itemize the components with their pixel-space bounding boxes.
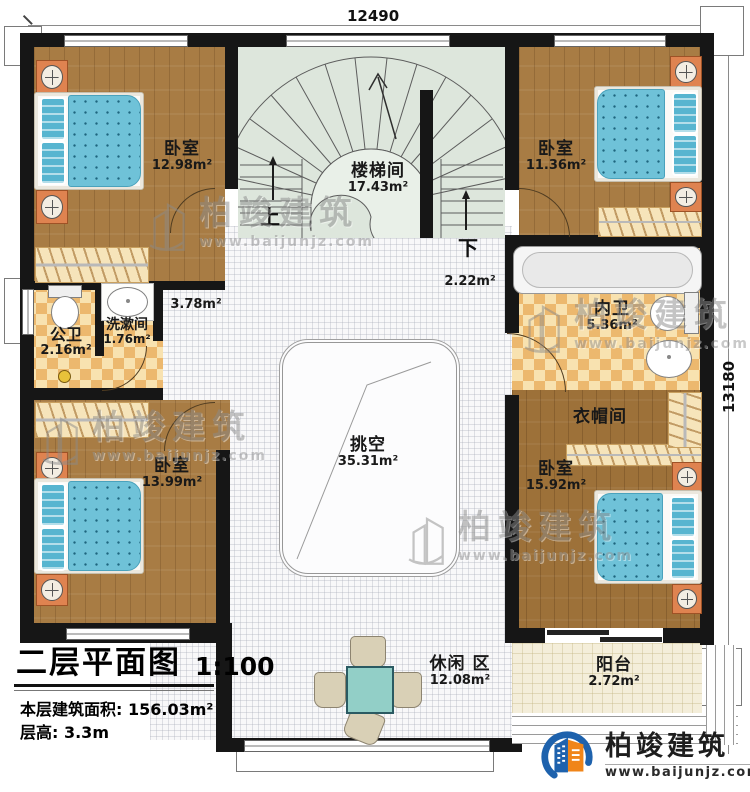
wall-bedroom1-stair [225, 47, 238, 189]
up-arrow-icon [272, 162, 274, 200]
room-label-bedroom-tr: 卧室 11.36m² [526, 140, 586, 173]
brand-logo-icon [538, 728, 596, 784]
wall-washroom-right [153, 281, 163, 341]
wall-bedroom3-right [216, 450, 230, 623]
stair-up-label: 上 [260, 201, 280, 230]
room-label-balcony: 阳台 2.72m² [588, 656, 639, 689]
bed-pillow [40, 527, 66, 571]
bed-mattress [68, 481, 141, 571]
dimension-width: 12490 [347, 7, 399, 25]
floor-plan: 12490 13180 [0, 0, 750, 792]
dimension-height: 13180 [720, 356, 738, 418]
leisure-table [346, 666, 394, 714]
room-label-bedroom-br: 卧室 15.92m² [526, 460, 586, 493]
brand-website: www.baijunjz.com [605, 764, 750, 780]
slider-door-leaf [600, 637, 662, 642]
floor-drain [58, 370, 71, 383]
inner-bath-sink [646, 340, 692, 378]
nightstand-lamp [670, 56, 702, 88]
window-bottom-left [66, 628, 190, 640]
chair [350, 636, 386, 668]
bed-mattress [597, 89, 665, 179]
room-label-leisure: 休闲 区 12.08m² [430, 655, 491, 688]
room-label-hall-right: 2.22m² [444, 275, 495, 289]
nightstand-lamp [672, 584, 702, 614]
nightstand-lamp [36, 574, 68, 606]
wall-cloak-left [505, 395, 519, 643]
title-rule [14, 684, 214, 687]
toilet-bowl [650, 296, 685, 331]
bed-pillow [40, 483, 66, 527]
room-label-cloakroom: 衣帽间 [573, 408, 627, 427]
room-label-inner-bath: 内卫 5.36m² [586, 300, 637, 333]
dimension-line-top [28, 25, 722, 26]
wall-leisure-left [216, 623, 232, 752]
stair-down-label: 下 [458, 232, 478, 261]
window-top-1 [64, 35, 188, 47]
chair [390, 672, 422, 708]
title-rule [14, 690, 214, 691]
down-arrow-icon [465, 196, 467, 230]
room-label-washroom: 洗漱间 1.76m² [103, 318, 150, 347]
window-bay-frame [236, 750, 494, 772]
wall-right [700, 33, 714, 645]
bathtub [513, 246, 702, 294]
floor-height-text: 层高: 3.3m [20, 719, 109, 743]
wall-bath-left-bottom [20, 388, 163, 400]
closet-bedroom1 [35, 247, 149, 283]
floor-area-text: 本层建筑面积: 156.03m² [20, 696, 213, 720]
bed-pillow [40, 97, 66, 141]
room-label-public-bath: 公卫 2.16m² [40, 326, 91, 358]
room-label-bedroom-tl: 卧室 12.98m² [152, 140, 212, 173]
closet-cloakroom-v [668, 392, 702, 448]
room-label-hall-left: 3.78m² [170, 298, 221, 312]
bed-pillow [670, 538, 696, 580]
wall-left [20, 33, 34, 643]
window-top-3 [554, 35, 666, 47]
closet-bedroom3 [35, 402, 149, 438]
bed-pillow [672, 134, 698, 176]
toilet-tank [684, 292, 699, 334]
window-left [22, 289, 34, 335]
wall-stair-corridor [420, 90, 433, 238]
bed-pillow [672, 92, 698, 134]
window-top-2 [286, 35, 450, 47]
brand-name: 柏竣建筑 [605, 732, 750, 762]
nightstand-lamp [672, 462, 702, 492]
room-label-void: 挑空 35.31m² [338, 436, 398, 469]
bed-pillow [40, 141, 66, 185]
room-label-stairwell: 楼梯间 17.43m² [348, 162, 408, 195]
bed-pillow [670, 496, 696, 538]
plan-scale: 1:100 [195, 654, 275, 679]
slider-door-leaf [547, 630, 609, 635]
nightstand-lamp [670, 182, 702, 212]
chair [314, 672, 346, 708]
brand-logo: 柏竣建筑 www.baijunjz.com [538, 728, 750, 784]
title-block: 二层平面图 1:100 [16, 648, 275, 679]
bed-mattress [597, 493, 663, 581]
nightstand-lamp [36, 60, 68, 94]
nightstand-lamp [36, 190, 68, 224]
room-label-bedroom-bl: 卧室 13.99m² [142, 457, 202, 490]
plan-title: 二层平面图 [16, 648, 181, 679]
dimension-tick [23, 15, 33, 25]
washroom-sink [107, 287, 148, 317]
wall-bedroom2-left [505, 47, 519, 190]
bed-mattress [68, 95, 141, 187]
